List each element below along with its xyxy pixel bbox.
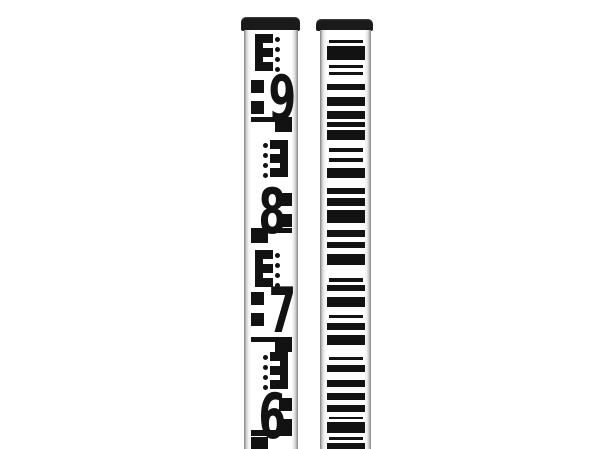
barcode-bar xyxy=(327,285,365,291)
barcode-bar xyxy=(327,254,365,265)
barcode-bar xyxy=(327,130,365,140)
barcode-bar xyxy=(327,230,365,237)
barcode-bar xyxy=(327,111,365,119)
staff-body: 9876 xyxy=(244,30,298,449)
barcode-bar xyxy=(327,380,365,387)
centimeter-dot xyxy=(263,153,268,158)
staff-body xyxy=(320,30,371,449)
decimeter-corner-square xyxy=(275,117,292,132)
barcode-bar xyxy=(329,72,363,75)
barcode-bar xyxy=(329,148,363,152)
barcode-bar xyxy=(327,210,365,223)
barcode-bar xyxy=(327,443,365,449)
barcode-bar xyxy=(327,335,365,345)
e-comb-spine xyxy=(255,34,263,71)
e-comb-tooth xyxy=(263,250,273,259)
e-comb-tooth xyxy=(263,34,273,43)
barcode-bar xyxy=(327,84,365,90)
centimeter-dot xyxy=(263,355,268,360)
e-comb-tooth xyxy=(263,48,273,57)
barcode-bar xyxy=(327,405,365,412)
barcode-bar xyxy=(327,422,365,433)
barcode-bar xyxy=(327,198,365,206)
barcode-staff xyxy=(316,19,373,449)
centimeter-dot xyxy=(275,263,280,268)
decimeter-corner-bar xyxy=(251,430,292,436)
centimeter-dot xyxy=(275,47,280,52)
e-comb-spine xyxy=(280,140,288,177)
product-photo: 9876 xyxy=(0,0,600,449)
barcode-bar xyxy=(327,297,365,307)
e-comb-tooth xyxy=(270,352,280,361)
decimeter-digit: 7 xyxy=(269,280,285,342)
barcode-bar xyxy=(327,365,365,372)
staff-graduation-face: 9876 xyxy=(251,30,292,449)
digit-side-square xyxy=(251,313,264,326)
barcode-bar xyxy=(329,158,363,162)
e-comb-tooth xyxy=(270,140,280,149)
barcode-bar xyxy=(327,122,365,127)
barcode-bar xyxy=(329,40,363,43)
centimeter-dot xyxy=(275,37,280,42)
barcode-bar xyxy=(327,323,365,330)
digit-side-square xyxy=(279,214,292,227)
digit-side-square xyxy=(251,292,264,305)
digit-side-square xyxy=(251,80,264,93)
decimeter-corner-square xyxy=(251,437,268,449)
e-comb-tooth xyxy=(263,264,273,273)
barcode-bar xyxy=(327,46,365,60)
staff-top-cap xyxy=(241,17,300,31)
digit-side-square xyxy=(279,398,292,411)
barcode-bar xyxy=(329,357,363,360)
barcode-bar xyxy=(329,437,363,440)
e-pattern-staff: 9876 xyxy=(241,17,300,449)
barcode-bar xyxy=(327,242,365,248)
e-comb-tooth xyxy=(270,366,280,375)
e-comb-tooth xyxy=(270,154,280,163)
centimeter-dot xyxy=(275,253,280,258)
barcode-bar xyxy=(329,65,363,68)
centimeter-dot xyxy=(263,365,268,370)
staff-barcode-face xyxy=(327,30,365,449)
barcode-bar xyxy=(327,393,365,400)
decimeter-corner-square xyxy=(275,337,292,352)
barcode-bar xyxy=(327,168,365,178)
decimeter-corner-square xyxy=(251,228,268,243)
barcode-bar xyxy=(329,278,363,282)
barcode-bar xyxy=(329,315,363,318)
centimeter-dot xyxy=(263,163,268,168)
e-comb-spine xyxy=(255,250,263,287)
barcode-bar xyxy=(327,188,365,194)
barcode-bar xyxy=(329,417,363,419)
barcode-bar xyxy=(327,97,365,106)
digit-side-square xyxy=(251,101,264,114)
digit-side-square xyxy=(279,193,292,206)
centimeter-dot xyxy=(263,143,268,148)
